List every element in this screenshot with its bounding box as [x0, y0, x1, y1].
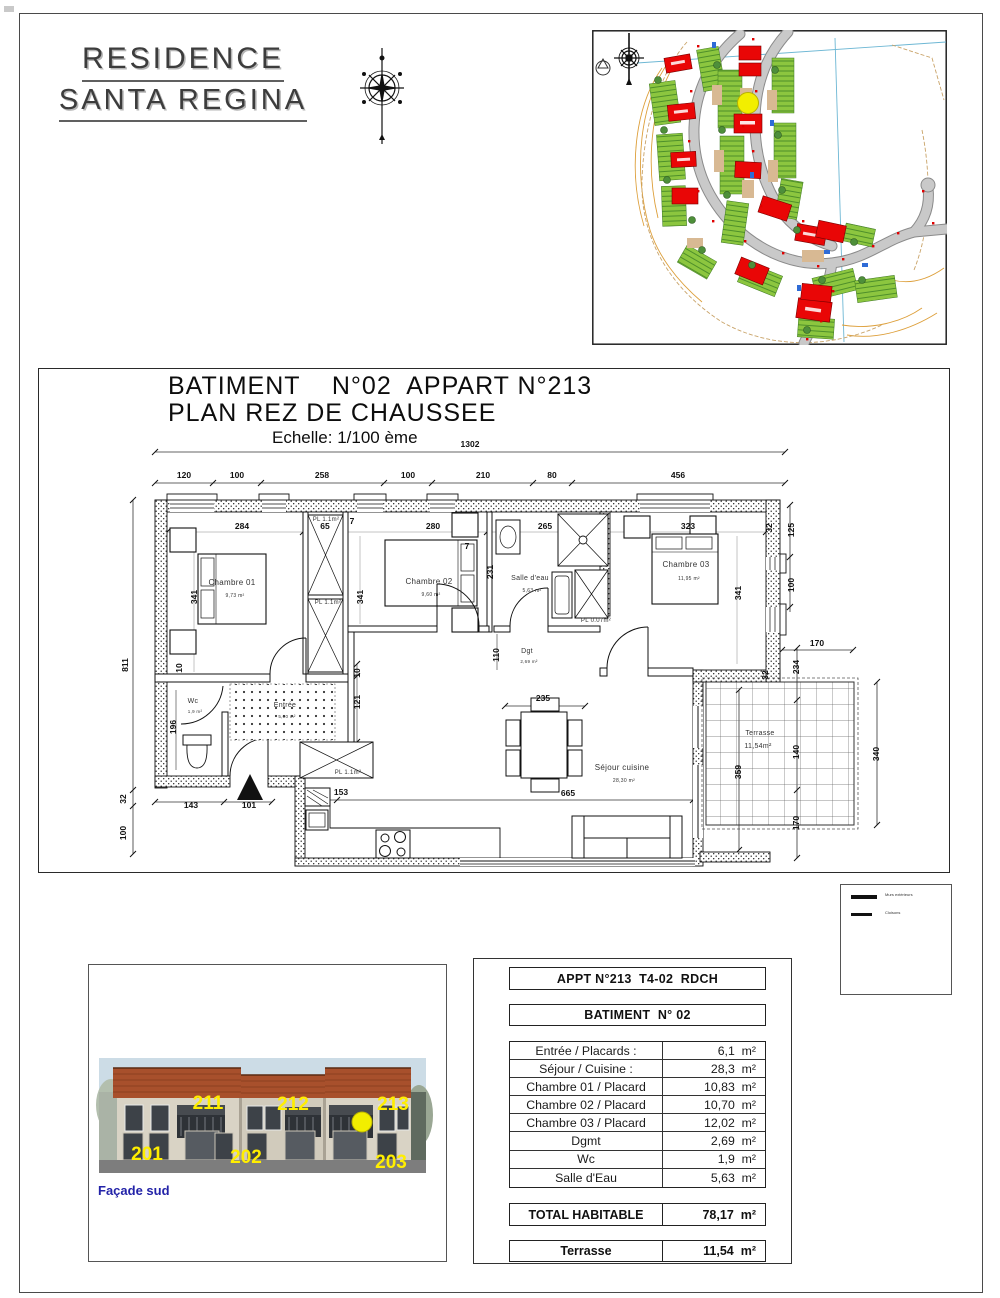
- summary-table: APPT N°213 T4-02 RDCH BATIMENT N° 02 Ent…: [473, 958, 792, 1264]
- dimension-label: 143: [184, 800, 198, 810]
- terrace-label: Terrasse: [510, 1241, 663, 1261]
- unit-number-label: 213: [377, 1094, 409, 1115]
- dimension-label: 7: [350, 516, 355, 526]
- table-row: Chambre 03 / Placard12,02 m²: [510, 1114, 765, 1132]
- dimension-label: 121: [352, 695, 362, 709]
- room-label: PL 0.07m²: [581, 618, 611, 624]
- dimension-label: 234: [791, 660, 801, 674]
- building-highlight-marker: [738, 93, 759, 114]
- shower: [558, 514, 608, 566]
- room-label: PL 1.1m²: [313, 517, 340, 523]
- dimension-label: 125: [786, 523, 796, 537]
- dimension-label: 120: [177, 470, 191, 480]
- dimension-label: 280: [426, 521, 440, 531]
- area-rows: Entrée / Placards :6,1 m²Séjour / Cuisin…: [509, 1041, 766, 1188]
- room-area-cell: 10,83 m²: [663, 1078, 765, 1095]
- room-label: 28,30 m²: [613, 778, 635, 784]
- table-row: Chambre 01 / Placard10,83 m²: [510, 1078, 765, 1096]
- dimension-label: 100: [786, 578, 796, 592]
- dimension-label: 456: [671, 470, 685, 480]
- room-label: Terrasse: [745, 730, 774, 737]
- room-label: Chambre 01: [208, 578, 255, 587]
- dimension-label: 110: [491, 648, 501, 662]
- dimension-label: 32: [760, 670, 770, 680]
- dimension-label: 811: [120, 658, 130, 672]
- road-dead-end: [921, 178, 935, 192]
- dimension-label: 265: [538, 521, 552, 531]
- dimension-label: 101: [242, 800, 256, 810]
- dimension-label: 170: [810, 638, 824, 648]
- compass-rose-icon: [352, 46, 412, 146]
- table-row: Séjour / Cuisine :28,3 m²: [510, 1060, 765, 1078]
- dimension-label: 235: [536, 693, 550, 703]
- thick-line-swatch: [851, 895, 877, 899]
- unit-number-label: 201: [131, 1144, 163, 1165]
- room-label: Séjour cuisine: [595, 763, 650, 772]
- table-row: Salle d'Eau5,63 m²: [510, 1169, 765, 1187]
- bed-chambre-01: [170, 528, 266, 654]
- room-name-cell: Chambre 01 / Placard: [510, 1078, 663, 1095]
- dimension-label: 341: [355, 590, 365, 604]
- scan-artifact: [4, 6, 14, 12]
- dimension-label: 210: [476, 470, 490, 480]
- room-area-cell: 6,1 m²: [663, 1042, 765, 1059]
- dining-table: [506, 698, 582, 792]
- dimension-label: 323: [681, 521, 695, 531]
- room-label: 1,9 m²: [188, 709, 203, 714]
- dimension-label: 340: [871, 747, 881, 761]
- site-map: [592, 30, 947, 345]
- room-label: Wc: [188, 698, 199, 705]
- room-label: Chambre 03: [662, 560, 709, 569]
- unit-highlight-marker: [352, 1112, 372, 1132]
- project-title-line1: RESIDENCE: [82, 40, 284, 82]
- room-label: 11,54m²: [744, 743, 772, 750]
- table-header-appt-text: APPT N°213 T4-02 RDCH: [510, 968, 765, 989]
- legend-label: Cloisons: [885, 910, 900, 915]
- facade-elevation: 211212213201202203: [89, 965, 446, 1261]
- table-header-batiment: BATIMENT N° 02: [509, 1004, 766, 1026]
- terrace-value: 11,54 m²: [663, 1241, 765, 1261]
- project-title: RESIDENCE SANTA REGINA: [58, 40, 308, 122]
- room-name-cell: Séjour / Cuisine :: [510, 1060, 663, 1077]
- dimension-label: 32: [118, 794, 128, 804]
- room-area-cell: 12,02 m²: [663, 1114, 765, 1131]
- toilet: [183, 735, 211, 768]
- legend-label: Murs extérieurs: [885, 892, 913, 897]
- dimension-label: 341: [733, 586, 743, 600]
- dimension-label: 100: [401, 470, 415, 480]
- dimension-label: 7: [465, 541, 470, 551]
- room-name-cell: Wc: [510, 1151, 663, 1168]
- total-value: 78,17 m²: [663, 1204, 765, 1225]
- sofa: [572, 816, 682, 858]
- room-label: 9,73 m²: [225, 593, 244, 599]
- floor-plan: 1302120100258100210804562846572802653237…: [38, 368, 948, 871]
- dimension-label: 196: [168, 720, 178, 734]
- table-header-appt: APPT N°213 T4-02 RDCH: [509, 967, 766, 990]
- dimension-label: 170: [791, 816, 801, 830]
- room-name-cell: Salle d'Eau: [510, 1169, 663, 1187]
- room-area-cell: 2,69 m²: [663, 1132, 765, 1149]
- dimension-label: 153: [334, 787, 348, 797]
- table-row: Chambre 02 / Placard10,70 m²: [510, 1096, 765, 1114]
- dimension-label: 231: [485, 565, 495, 579]
- unit-number-label: 203: [375, 1152, 407, 1173]
- dimension-label: 80: [547, 470, 557, 480]
- terrace-row: Terrasse 11,54 m²: [509, 1240, 766, 1262]
- dimension-label: 665: [561, 788, 575, 798]
- room-label: PL 1.1m²: [335, 770, 362, 776]
- dimension-label: 100: [230, 470, 244, 480]
- room-name-cell: Entrée / Placards :: [510, 1042, 663, 1059]
- unit-number-label: 202: [230, 1147, 262, 1168]
- room-label: Chambre 02: [405, 577, 452, 586]
- entree-floor: [230, 684, 335, 740]
- room-area-cell: 1,9 m²: [663, 1151, 765, 1168]
- dimension-label: 341: [189, 590, 199, 604]
- legend-item: Murs extérieurs: [841, 890, 951, 903]
- table-row: Entrée / Placards :6,1 m²: [510, 1042, 765, 1060]
- plan-sheet-page: RESIDENCE SANTA REGINA: [0, 0, 1000, 1298]
- room-area-cell: 5,63 m²: [663, 1169, 765, 1187]
- entrance-arrow: [237, 774, 263, 800]
- legend-item: Cloisons: [841, 908, 951, 921]
- thin-line-swatch: [851, 913, 872, 916]
- dimension-label: 1302: [461, 439, 480, 449]
- facade-caption: Façade sud: [98, 1183, 170, 1198]
- room-label: 11,95 m²: [678, 576, 700, 582]
- table-row: Wc1,9 m²: [510, 1151, 765, 1169]
- dimension-label: 258: [315, 470, 329, 480]
- facade-panel: 211212213201202203 Façade sud: [88, 964, 447, 1262]
- dimension-label: 10: [174, 663, 184, 673]
- room-area-cell: 28,3 m²: [663, 1060, 765, 1077]
- legend-box: Murs extérieurs Cloisons: [840, 884, 952, 995]
- dimension-label: 140: [791, 745, 801, 759]
- room-name-cell: Dgmt: [510, 1132, 663, 1149]
- total-label: TOTAL HABITABLE: [510, 1204, 663, 1225]
- unit-number-label: 212: [277, 1094, 309, 1115]
- terrace: [702, 678, 858, 829]
- kitchen: [305, 788, 500, 858]
- table-row: Dgmt2,69 m²: [510, 1132, 765, 1150]
- unit-number-label: 211: [193, 1093, 224, 1114]
- room-label: 5,63 m²: [522, 588, 541, 594]
- room-label: Entrée: [274, 702, 296, 709]
- project-title-line2: SANTA REGINA: [59, 82, 307, 122]
- room-label: 5,00 m²: [278, 714, 296, 719]
- room-label: 9,60 m²: [421, 592, 440, 598]
- total-row: TOTAL HABITABLE 78,17 m²: [509, 1203, 766, 1226]
- dimension-label: 359: [733, 765, 743, 779]
- room-label: Dgt: [521, 648, 533, 655]
- room-label: 2,69 m²: [520, 659, 538, 664]
- room-name-cell: Chambre 02 / Placard: [510, 1096, 663, 1113]
- room-area-cell: 10,70 m²: [663, 1096, 765, 1113]
- room-label: Salle d'eau: [511, 575, 549, 582]
- table-header-batiment-text: BATIMENT N° 02: [510, 1005, 765, 1025]
- dimension-label: 32: [764, 523, 774, 533]
- room-name-cell: Chambre 03 / Placard: [510, 1114, 663, 1131]
- dimension-label: 284: [235, 521, 249, 531]
- room-label: PL 1.1m²: [315, 600, 342, 606]
- dimension-label: 10: [352, 668, 362, 678]
- dimension-label: 100: [118, 826, 128, 840]
